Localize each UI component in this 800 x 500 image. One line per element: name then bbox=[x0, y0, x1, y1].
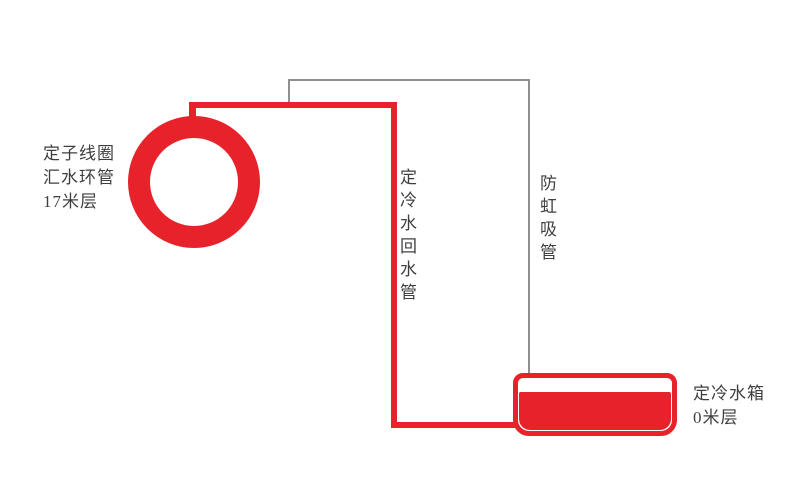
cooling-water-tank bbox=[513, 373, 677, 436]
tank-water-fill bbox=[519, 392, 671, 430]
anti-siphon-pipe-tap-segment bbox=[288, 80, 290, 104]
tank-label: 定冷水箱 0米层 bbox=[693, 382, 765, 430]
stator-coil-water-ring bbox=[128, 116, 260, 248]
anti-siphon-pipe-vertical-segment bbox=[528, 79, 530, 375]
return-pipe-label: 定冷水回水管 bbox=[394, 168, 419, 306]
return-pipe-top-segment bbox=[189, 102, 397, 108]
anti-siphon-pipe-label: 防虹吸管 bbox=[534, 174, 559, 266]
diagram-canvas: 定子线圈 汇水环管 17米层 定冷水回水管 防虹吸管 定冷水箱 0米层 bbox=[0, 0, 800, 500]
anti-siphon-pipe-horizontal-segment bbox=[288, 79, 530, 81]
return-pipe-bottom-segment bbox=[391, 422, 520, 428]
stator-ring-label: 定子线圈 汇水环管 17米层 bbox=[43, 142, 115, 214]
